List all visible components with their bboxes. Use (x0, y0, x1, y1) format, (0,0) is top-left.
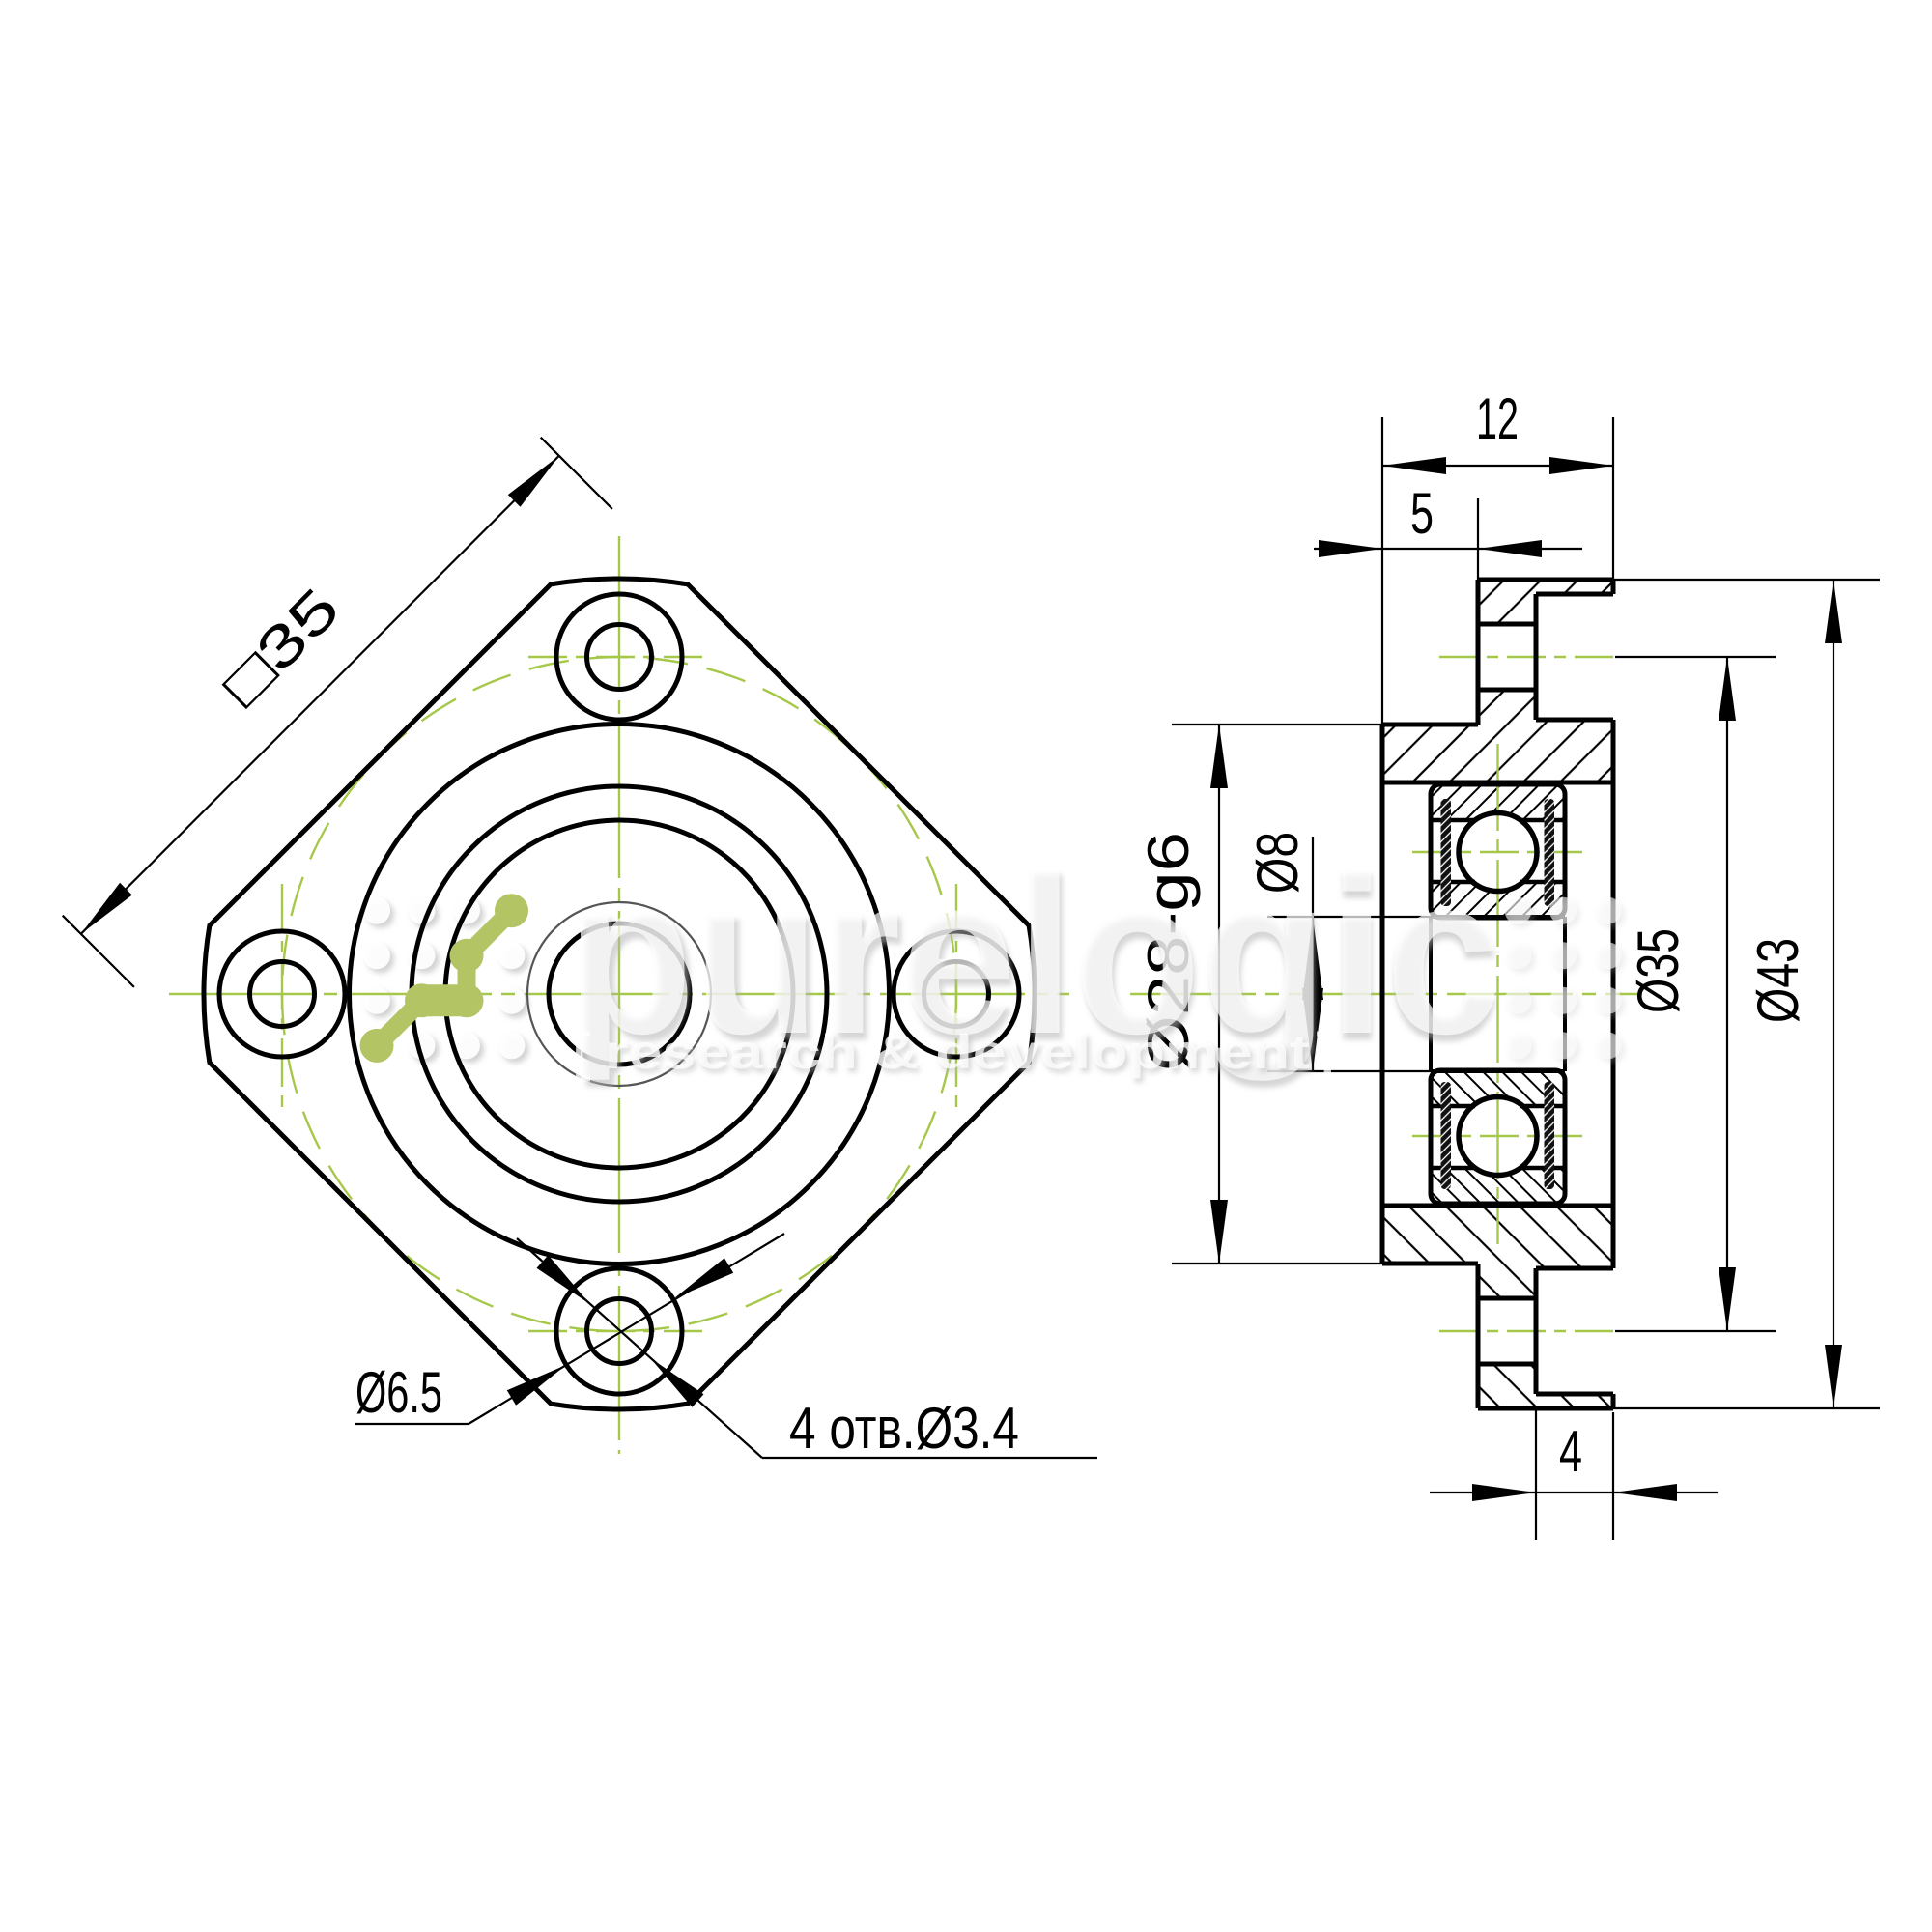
svg-text:12: 12 (1476, 386, 1519, 451)
svg-text:4: 4 (1559, 1419, 1582, 1484)
svg-text:Ø6.5: Ø6.5 (355, 1360, 442, 1425)
svg-text:research & development: research & development (605, 1025, 1310, 1079)
svg-text:[: [ (573, 1021, 591, 1082)
svg-text:5: 5 (1410, 481, 1434, 546)
svg-text:]: ] (1316, 1021, 1334, 1082)
svg-text:Ø43: Ø43 (1746, 938, 1810, 1023)
svg-text:Ø35: Ø35 (1626, 928, 1690, 1013)
svg-text:4 отв.Ø3.4: 4 отв.Ø3.4 (789, 1396, 1019, 1461)
